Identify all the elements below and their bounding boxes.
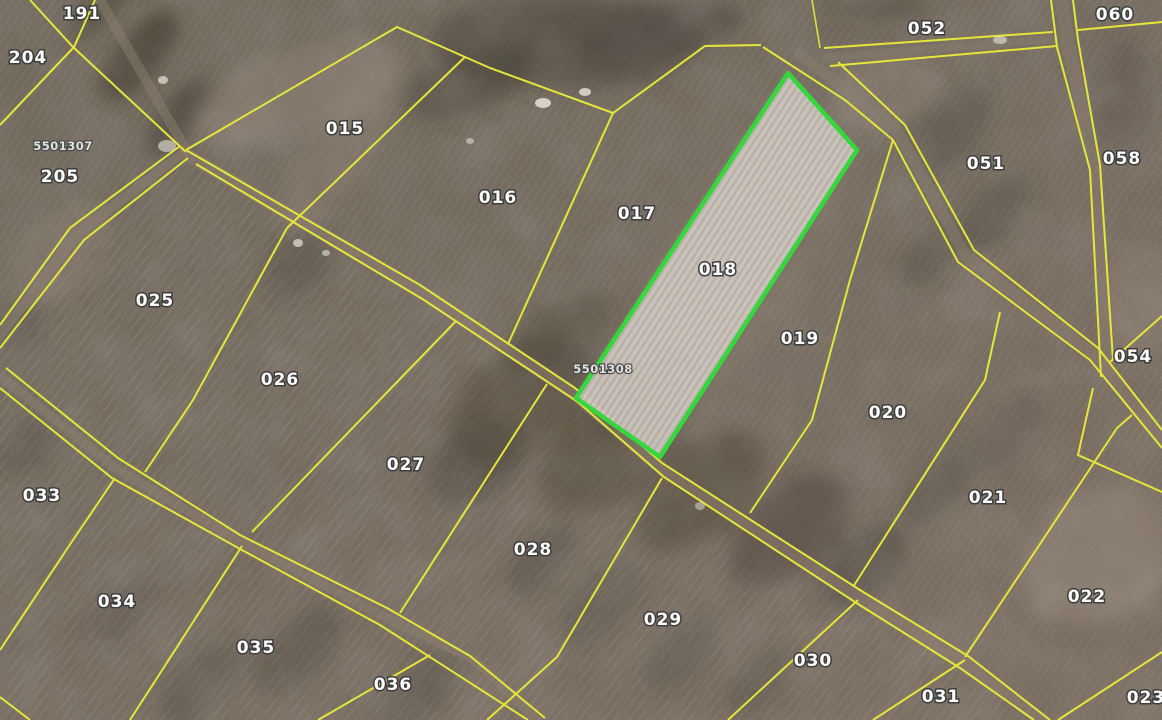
parcel-label-051: 051 xyxy=(967,154,1006,174)
parcel-label-025: 025 xyxy=(136,291,175,311)
parcel-label-018: 018 xyxy=(699,260,738,280)
parcel-label-017: 017 xyxy=(618,204,657,224)
parcel-label-016: 016 xyxy=(479,188,518,208)
parcel-label-035: 035 xyxy=(237,638,276,658)
parcel-label-023: 023 xyxy=(1127,688,1162,708)
satellite-imagery xyxy=(0,0,1162,720)
parcel-label-031: 031 xyxy=(922,687,961,707)
parcel-label-060: 060 xyxy=(1096,5,1135,25)
parcel-label-033: 033 xyxy=(23,486,62,506)
parcel-label-058: 058 xyxy=(1103,149,1142,169)
parcel-label-034: 034 xyxy=(98,592,137,612)
parcel-label-028: 028 xyxy=(514,540,553,560)
parcel-label-022: 022 xyxy=(1068,587,1107,607)
parcel-ref-5501308: 5501308 xyxy=(573,362,633,376)
parcel-label-054: 054 xyxy=(1114,347,1153,367)
parcel-label-026: 026 xyxy=(261,370,300,390)
image-grain xyxy=(0,0,1162,720)
parcel-label-205: 205 xyxy=(41,167,80,187)
parcel-label-030: 030 xyxy=(794,651,833,671)
map-viewport[interactable]: 191 204 5501307 205 015 016 017 018 019 … xyxy=(0,0,1162,720)
parcel-label-029: 029 xyxy=(644,610,683,630)
parcel-label-020: 020 xyxy=(869,403,908,423)
parcel-ref-5501307: 5501307 xyxy=(33,139,93,153)
parcel-label-052: 052 xyxy=(908,19,947,39)
parcel-label-191: 191 xyxy=(63,4,102,24)
parcel-label-015: 015 xyxy=(326,119,365,139)
parcel-label-204: 204 xyxy=(9,48,48,68)
parcel-label-027: 027 xyxy=(387,455,426,475)
parcel-label-036: 036 xyxy=(374,675,413,695)
cadastral-map-canvas[interactable]: 191 204 5501307 205 015 016 017 018 019 … xyxy=(0,0,1162,720)
parcel-label-019: 019 xyxy=(781,329,820,349)
parcel-label-021: 021 xyxy=(969,488,1008,508)
